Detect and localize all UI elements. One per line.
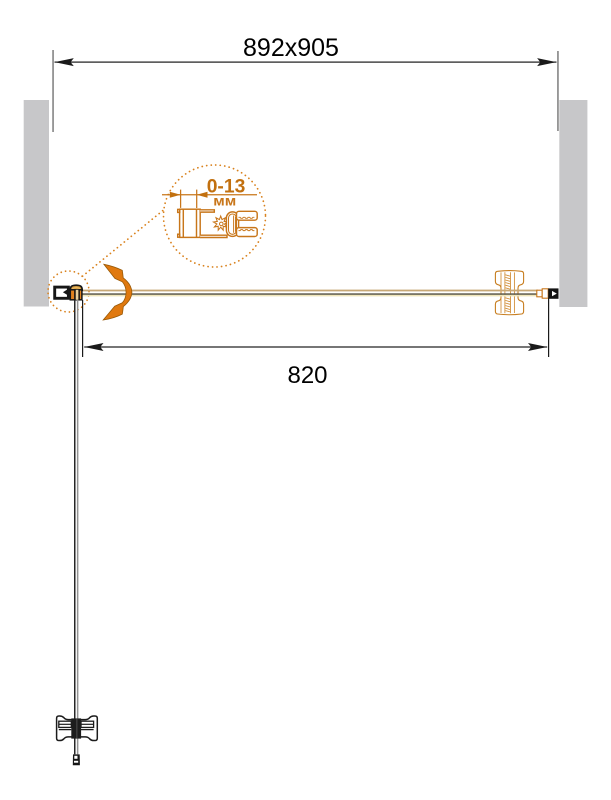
svg-text:820: 820: [287, 362, 327, 389]
svg-text:892x905: 892x905: [243, 34, 339, 62]
